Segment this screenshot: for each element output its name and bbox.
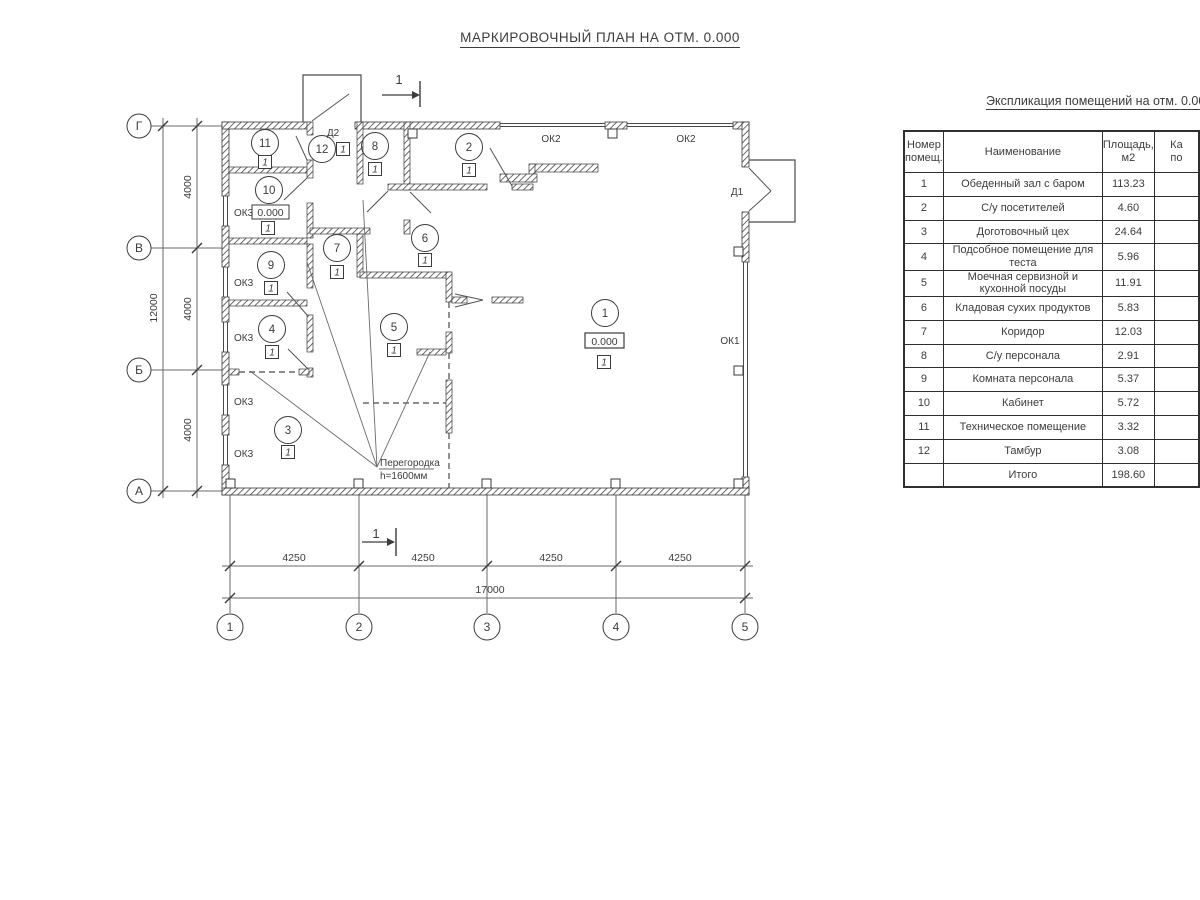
axis-and-dimension-lines bbox=[151, 118, 753, 613]
header-area: Площадь,м2 bbox=[1102, 131, 1154, 173]
cell-category bbox=[1154, 392, 1199, 416]
table-row: 11Техническое помещение3.32 bbox=[904, 415, 1199, 439]
cell-area: 4.60 bbox=[1102, 196, 1154, 220]
cell-area: 113.23 bbox=[1102, 173, 1154, 197]
cell-area: 5.83 bbox=[1102, 296, 1154, 320]
column-marks bbox=[226, 129, 743, 488]
room-number: 4 bbox=[269, 324, 276, 336]
window-tag-ok3: ОК3 bbox=[234, 208, 254, 219]
cell-area: 24.64 bbox=[1102, 220, 1154, 244]
cell-name: Подсобное помещение для теста bbox=[943, 244, 1102, 270]
cell-category bbox=[1154, 220, 1199, 244]
floor-mark: 1 bbox=[265, 224, 271, 235]
axis-label: 2 bbox=[356, 620, 363, 634]
table-row: 5Моечная сервизной и кухонной посуды11.9… bbox=[904, 270, 1199, 296]
axis-label: 4 bbox=[613, 620, 620, 634]
cell-num: 6 bbox=[904, 296, 943, 320]
dim-value: 12000 bbox=[148, 293, 160, 322]
axis-label: Г bbox=[136, 119, 143, 133]
total-label: Итого bbox=[943, 463, 1102, 487]
dim-value: 4250 bbox=[668, 552, 692, 564]
room-number: 3 bbox=[285, 425, 291, 437]
cell-num: 9 bbox=[904, 368, 943, 392]
cell-area: 5.72 bbox=[1102, 392, 1154, 416]
floor-mark: 1 bbox=[340, 145, 346, 156]
room-number: 2 bbox=[466, 142, 472, 154]
table-total-row: Итого198.60 bbox=[904, 463, 1199, 487]
floor-mark: 1 bbox=[601, 358, 607, 369]
table-row: 6Кладовая сухих продуктов5.83 bbox=[904, 296, 1199, 320]
cell-category bbox=[1154, 368, 1199, 392]
dim-value: 4250 bbox=[539, 552, 563, 564]
cell-name: Кабинет bbox=[943, 392, 1102, 416]
cell-category bbox=[1154, 463, 1199, 487]
cell-category bbox=[1154, 415, 1199, 439]
room-number-circles bbox=[252, 130, 619, 444]
floor-mark: 1 bbox=[262, 158, 268, 169]
table-row: 3Доготовочный цех24.64 bbox=[904, 220, 1199, 244]
cell-area: 12.03 bbox=[1102, 320, 1154, 344]
cell-num: 3 bbox=[904, 220, 943, 244]
axis-label: 5 bbox=[742, 620, 749, 634]
room-number: 12 bbox=[316, 144, 329, 156]
table-row: 7Коридор12.03 bbox=[904, 320, 1199, 344]
cell-num: 2 bbox=[904, 196, 943, 220]
table-row: 4Подсобное помещение для теста5.96 bbox=[904, 244, 1199, 270]
table-row: 1Обеденный зал с баром113.23 bbox=[904, 173, 1199, 197]
cell-name: Коридор bbox=[943, 320, 1102, 344]
room-number: 6 bbox=[422, 233, 428, 245]
axis-label: В bbox=[135, 241, 143, 255]
cell-name: Доготовочный цех bbox=[943, 220, 1102, 244]
cell-category bbox=[1154, 296, 1199, 320]
cell-num: 7 bbox=[904, 320, 943, 344]
section-label: 1 bbox=[395, 72, 402, 87]
axis-label: Б bbox=[135, 363, 143, 377]
partition-note: Перегородка h=1600мм bbox=[380, 458, 440, 482]
cell-name: Комната персонала bbox=[943, 368, 1102, 392]
cell-area: 11.91 bbox=[1102, 270, 1154, 296]
table-row: 10Кабинет5.72 bbox=[904, 392, 1199, 416]
axis-label: А bbox=[135, 484, 143, 498]
cell-num: 12 bbox=[904, 439, 943, 463]
cell-num: 11 bbox=[904, 415, 943, 439]
drawing-sheet: МАРКИРОВОЧНЫЙ ПЛАН НА ОТМ. 0.000 bbox=[0, 0, 1200, 900]
window-tag-ok3: ОК3 bbox=[234, 397, 254, 408]
interior-walls bbox=[229, 122, 598, 433]
cell-name: Кладовая сухих продуктов bbox=[943, 296, 1102, 320]
section-label: 1 bbox=[372, 526, 379, 541]
dim-value: 4000 bbox=[182, 418, 194, 442]
dim-value: 17000 bbox=[475, 584, 504, 596]
floor-mark: 1 bbox=[466, 166, 472, 177]
cell-category bbox=[1154, 196, 1199, 220]
cell-num bbox=[904, 463, 943, 487]
cell-category bbox=[1154, 173, 1199, 197]
floor-mark: 1 bbox=[285, 448, 291, 459]
section-mark-bottom: 1 bbox=[362, 526, 396, 556]
table-header-row: Номерпомещ. Наименование Площадь,м2 Капо bbox=[904, 131, 1199, 173]
cell-name: С/у посетителей bbox=[943, 196, 1102, 220]
header-category-clipped: Капо bbox=[1154, 131, 1199, 173]
partition-note-line1: Перегородка bbox=[380, 458, 440, 469]
dim-value: 4000 bbox=[182, 175, 194, 199]
axis-label: 3 bbox=[484, 620, 491, 634]
elevation-value: 0.000 bbox=[257, 207, 283, 219]
table-row: 12Тамбур3.08 bbox=[904, 439, 1199, 463]
cell-category bbox=[1154, 244, 1199, 270]
room-number: 11 bbox=[259, 138, 271, 150]
floor-mark: 1 bbox=[391, 346, 397, 357]
header-name: Наименование bbox=[943, 131, 1102, 173]
dim-value: 4250 bbox=[282, 552, 306, 564]
dim-value: 4250 bbox=[411, 552, 435, 564]
room-number: 8 bbox=[372, 141, 378, 153]
cell-num: 10 bbox=[904, 392, 943, 416]
cell-num: 1 bbox=[904, 173, 943, 197]
cell-area: 2.91 bbox=[1102, 344, 1154, 368]
total-area: 198.60 bbox=[1102, 463, 1154, 487]
floor-mark: 1 bbox=[422, 256, 428, 267]
room-number: 9 bbox=[268, 260, 274, 272]
section-mark-top: 1 bbox=[382, 72, 420, 107]
cell-name: Обеденный зал с баром bbox=[943, 173, 1102, 197]
floor-mark: 1 bbox=[334, 268, 340, 279]
window-tag-ok1: ОК1 bbox=[720, 336, 740, 347]
table-row: 2С/у посетителей4.60 bbox=[904, 196, 1199, 220]
room-schedule-table: Номерпомещ. Наименование Площадь,м2 Капо… bbox=[903, 130, 1200, 488]
room-number: 5 bbox=[391, 322, 397, 334]
cell-name: Тамбур bbox=[943, 439, 1102, 463]
window-tag-ok2: ОК2 bbox=[541, 134, 561, 145]
cell-num: 4 bbox=[904, 244, 943, 270]
window-tag-ok2: ОК2 bbox=[676, 134, 696, 145]
cell-name: С/у персонала bbox=[943, 344, 1102, 368]
schedule-title-text: Экспликация помещений на отм. 0.000 bbox=[986, 94, 1200, 110]
window-tag-ok3: ОК3 bbox=[234, 333, 254, 344]
cell-category bbox=[1154, 439, 1199, 463]
room-schedule: Номерпомещ. Наименование Площадь,м2 Капо… bbox=[903, 130, 1200, 488]
dim-value: 4000 bbox=[182, 297, 194, 321]
cell-area: 3.32 bbox=[1102, 415, 1154, 439]
floor-plan: 1 1 Г В Б А 1 2 3 4 5 4000 bbox=[0, 0, 900, 700]
room-number: 1 bbox=[602, 308, 608, 320]
cell-name: Моечная сервизной и кухонной посуды bbox=[943, 270, 1102, 296]
elevation-value: 0.000 bbox=[591, 336, 617, 348]
cell-area: 3.08 bbox=[1102, 439, 1154, 463]
door-tag-d1: Д1 bbox=[731, 187, 744, 198]
floor-mark: 1 bbox=[268, 284, 274, 295]
cell-name: Техническое помещение bbox=[943, 415, 1102, 439]
cell-area: 5.37 bbox=[1102, 368, 1154, 392]
table-row: 8С/у персонала2.91 bbox=[904, 344, 1199, 368]
room-number: 10 bbox=[263, 185, 276, 197]
cell-category bbox=[1154, 320, 1199, 344]
cell-num: 5 bbox=[904, 270, 943, 296]
door-tag-d2: Д2 bbox=[327, 128, 340, 139]
cell-num: 8 bbox=[904, 344, 943, 368]
room-number: 7 bbox=[334, 243, 340, 255]
window-tag-ok3: ОК3 bbox=[234, 449, 254, 460]
partition-note-line2: h=1600мм bbox=[380, 471, 428, 482]
table-row: 9Комната персонала5.37 bbox=[904, 368, 1199, 392]
floor-mark: 1 bbox=[269, 348, 275, 359]
axis-label: 1 bbox=[227, 620, 234, 634]
dimension-ticks bbox=[158, 121, 750, 603]
header-number: Номерпомещ. bbox=[904, 131, 943, 173]
window-tag-ok3: ОК3 bbox=[234, 278, 254, 289]
cell-category bbox=[1154, 344, 1199, 368]
cell-category bbox=[1154, 270, 1199, 296]
floor-mark: 1 bbox=[372, 165, 378, 176]
schedule-title: Экспликация помещений на отм. 0.000 bbox=[986, 94, 1200, 108]
cell-area: 5.96 bbox=[1102, 244, 1154, 270]
